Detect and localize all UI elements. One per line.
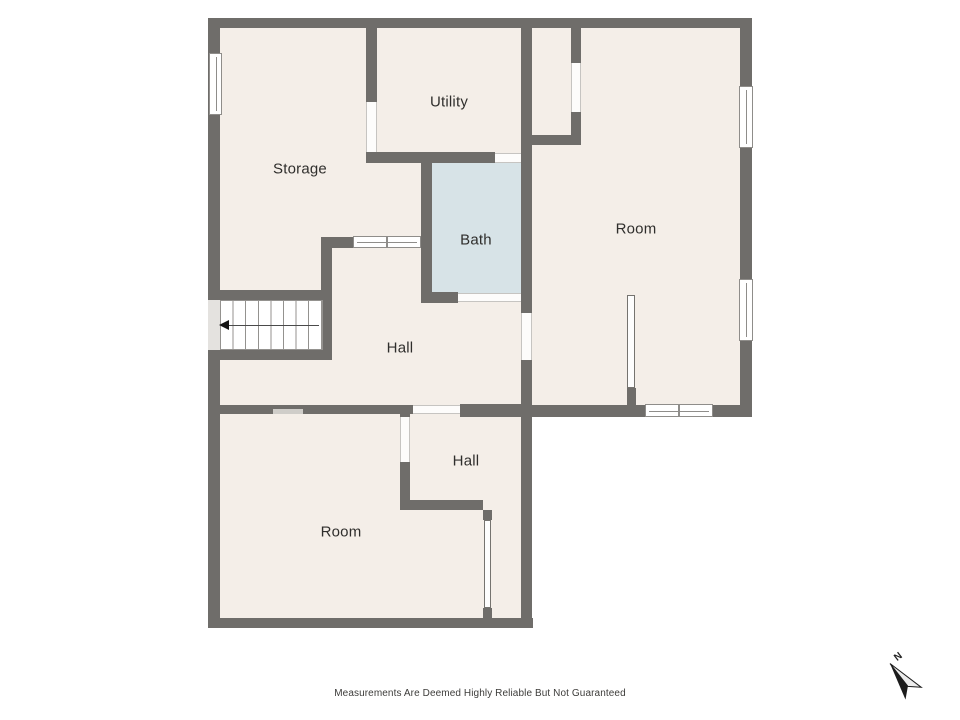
window-right-wall-lower [739,279,753,341]
room-label-storage: Storage [273,161,327,178]
wall-left-lower [208,360,220,628]
wall-smallhall-bottom [400,500,483,510]
floor-right-section [527,24,746,411]
wall-center-vertical-upper [521,28,532,313]
north-label: N [892,650,904,663]
stairs [220,300,323,350]
door-opening-closet [571,63,581,112]
wall-bath-bottom [421,292,458,303]
window-right-room-bottom [645,404,713,417]
wall-right-outer [740,18,752,417]
wall-stair-bottom [208,350,332,360]
door-opening-room-smallhall [400,417,410,462]
room-label-hall-small: Hall [453,453,480,470]
wall-smallhall-left-stub [400,405,410,417]
stair-direction-arrow-icon [219,320,229,330]
room-label-utility: Utility [430,94,468,111]
wall-center-vertical-mid [521,360,532,417]
north-arrow-icon: N [876,644,936,710]
wall-opening-notch [273,409,303,414]
disclaimer-text: Measurements Are Deemed Highly Reliable … [0,688,960,699]
wall-stair-top [208,290,332,300]
room-label-bath: Bath [460,232,492,249]
room-label-hall-main: Hall [387,340,414,357]
door-opening-hall-smallhall [413,405,460,414]
wall-hall-bottom-left [220,405,413,414]
wall-stair-end [322,290,332,360]
wall-nook-stub-top [483,510,492,520]
window-left-wall [209,53,222,115]
wall-closet-right-a [571,28,581,63]
wall-bath-left [421,152,432,303]
room-label-room-bottom: Room [321,524,362,541]
stair-direction-line [227,325,319,326]
window-interior-storage-hall [353,236,421,248]
wall-hall-bottom-right [460,404,521,417]
wall-nook-stub-bottom [483,608,492,620]
wall-closet-bottom [532,135,581,145]
floor-plan: Storage Utility Bath Room Hall Hall Room… [0,0,960,720]
bath-floor [432,160,521,293]
window-right-wall-upper [739,86,753,148]
room-label-room-right: Room [616,221,657,238]
door-leaf-bottom-nook [484,520,491,608]
wall-utility-left [366,28,377,102]
door-opening-utility-bath [495,153,521,163]
wall-center-vertical-lower [521,417,532,618]
door-opening-bath-hall [458,293,521,302]
wall-top [208,18,752,28]
door-opening-storage-utility [366,102,377,152]
wall-room-door-stub [627,388,636,405]
door-opening-hall-room [521,313,532,360]
door-leaf-right-room [627,295,635,388]
